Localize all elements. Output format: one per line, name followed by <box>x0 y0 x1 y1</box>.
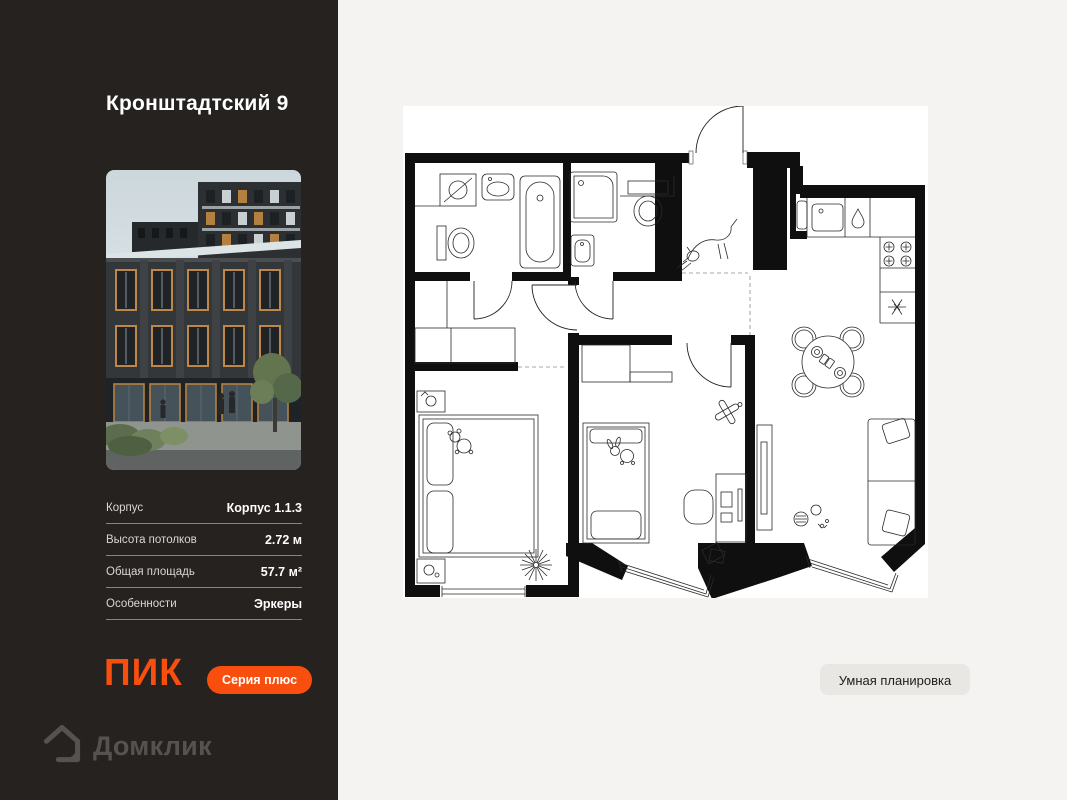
desk-chair-icon <box>684 490 713 524</box>
floor-plants-icon <box>794 505 829 528</box>
zone-dashes <box>518 273 750 367</box>
bedroom-furniture <box>415 281 552 583</box>
nightstand <box>417 391 445 412</box>
fridge-snowflake-icon <box>888 300 906 315</box>
spec-row-ceiling: Высота потолков 2.72 м <box>106 524 302 556</box>
dog-sketch <box>677 219 737 271</box>
spec-row-features: Особенности Эркеры <box>106 588 302 620</box>
toilet-icon <box>437 226 446 260</box>
desk-icon <box>716 474 746 542</box>
listing-card: Кронштадтский 9 <box>0 0 1067 800</box>
plant-starburst-icon <box>520 549 552 581</box>
building-illustration <box>106 170 301 470</box>
radiator-icon <box>797 201 807 229</box>
teddy-toy-icon <box>448 429 473 454</box>
door-jambs <box>689 151 747 164</box>
shower-icon <box>570 172 617 222</box>
childrens-room-furniture <box>582 345 748 564</box>
dining-table-set <box>792 327 864 397</box>
spec-label: Высота потолков <box>106 534 197 546</box>
domclick-logo: Домклик <box>40 722 212 771</box>
smart-layout-button[interactable]: Умная планировка <box>820 664 970 695</box>
kitchen-sink-icon <box>812 204 843 231</box>
bedroom-window <box>440 585 526 597</box>
domclick-house-icon <box>40 722 84 771</box>
spec-label: Корпус <box>106 502 143 514</box>
water-drop-icon <box>852 209 864 228</box>
bathroom1-fixtures <box>415 174 560 268</box>
complex-title: Кронштадтский 9 <box>106 92 288 116</box>
spec-value: 57.7 м² <box>261 565 302 579</box>
left-info-panel: Кронштадтский 9 <box>0 0 338 800</box>
living-room-furniture <box>757 418 915 545</box>
dining-table-icon <box>802 336 854 388</box>
nightstand <box>417 559 445 583</box>
floor-plan-image <box>403 106 928 598</box>
pik-logo: ПИК <box>104 652 183 695</box>
spec-table: Корпус Корпус 1.1.3 Высота потолков 2.72… <box>106 492 302 620</box>
kitchen-fixtures <box>797 198 915 323</box>
spec-value: Эркеры <box>254 597 302 611</box>
double-bed-icon <box>419 415 538 557</box>
closet <box>415 328 515 363</box>
stove-burners-icon <box>884 242 911 266</box>
spec-row-korpus: Корпус Корпус 1.1.3 <box>106 492 302 524</box>
bunny-toy-icon <box>606 437 634 465</box>
toy-plane-icon <box>709 392 748 430</box>
spec-label: Особенности <box>106 598 177 610</box>
series-plus-badge[interactable]: Серия плюс <box>207 666 312 694</box>
floor-plan-svg <box>403 106 928 598</box>
domclick-logo-text: Домклик <box>93 731 212 762</box>
background-block <box>132 222 198 252</box>
spec-value: Корпус 1.1.3 <box>227 501 302 515</box>
building-photo <box>106 170 301 470</box>
spec-value: 2.72 м <box>265 533 302 547</box>
spec-label: Общая площадь <box>106 566 195 578</box>
spec-row-area: Общая площадь 57.7 м² <box>106 556 302 588</box>
